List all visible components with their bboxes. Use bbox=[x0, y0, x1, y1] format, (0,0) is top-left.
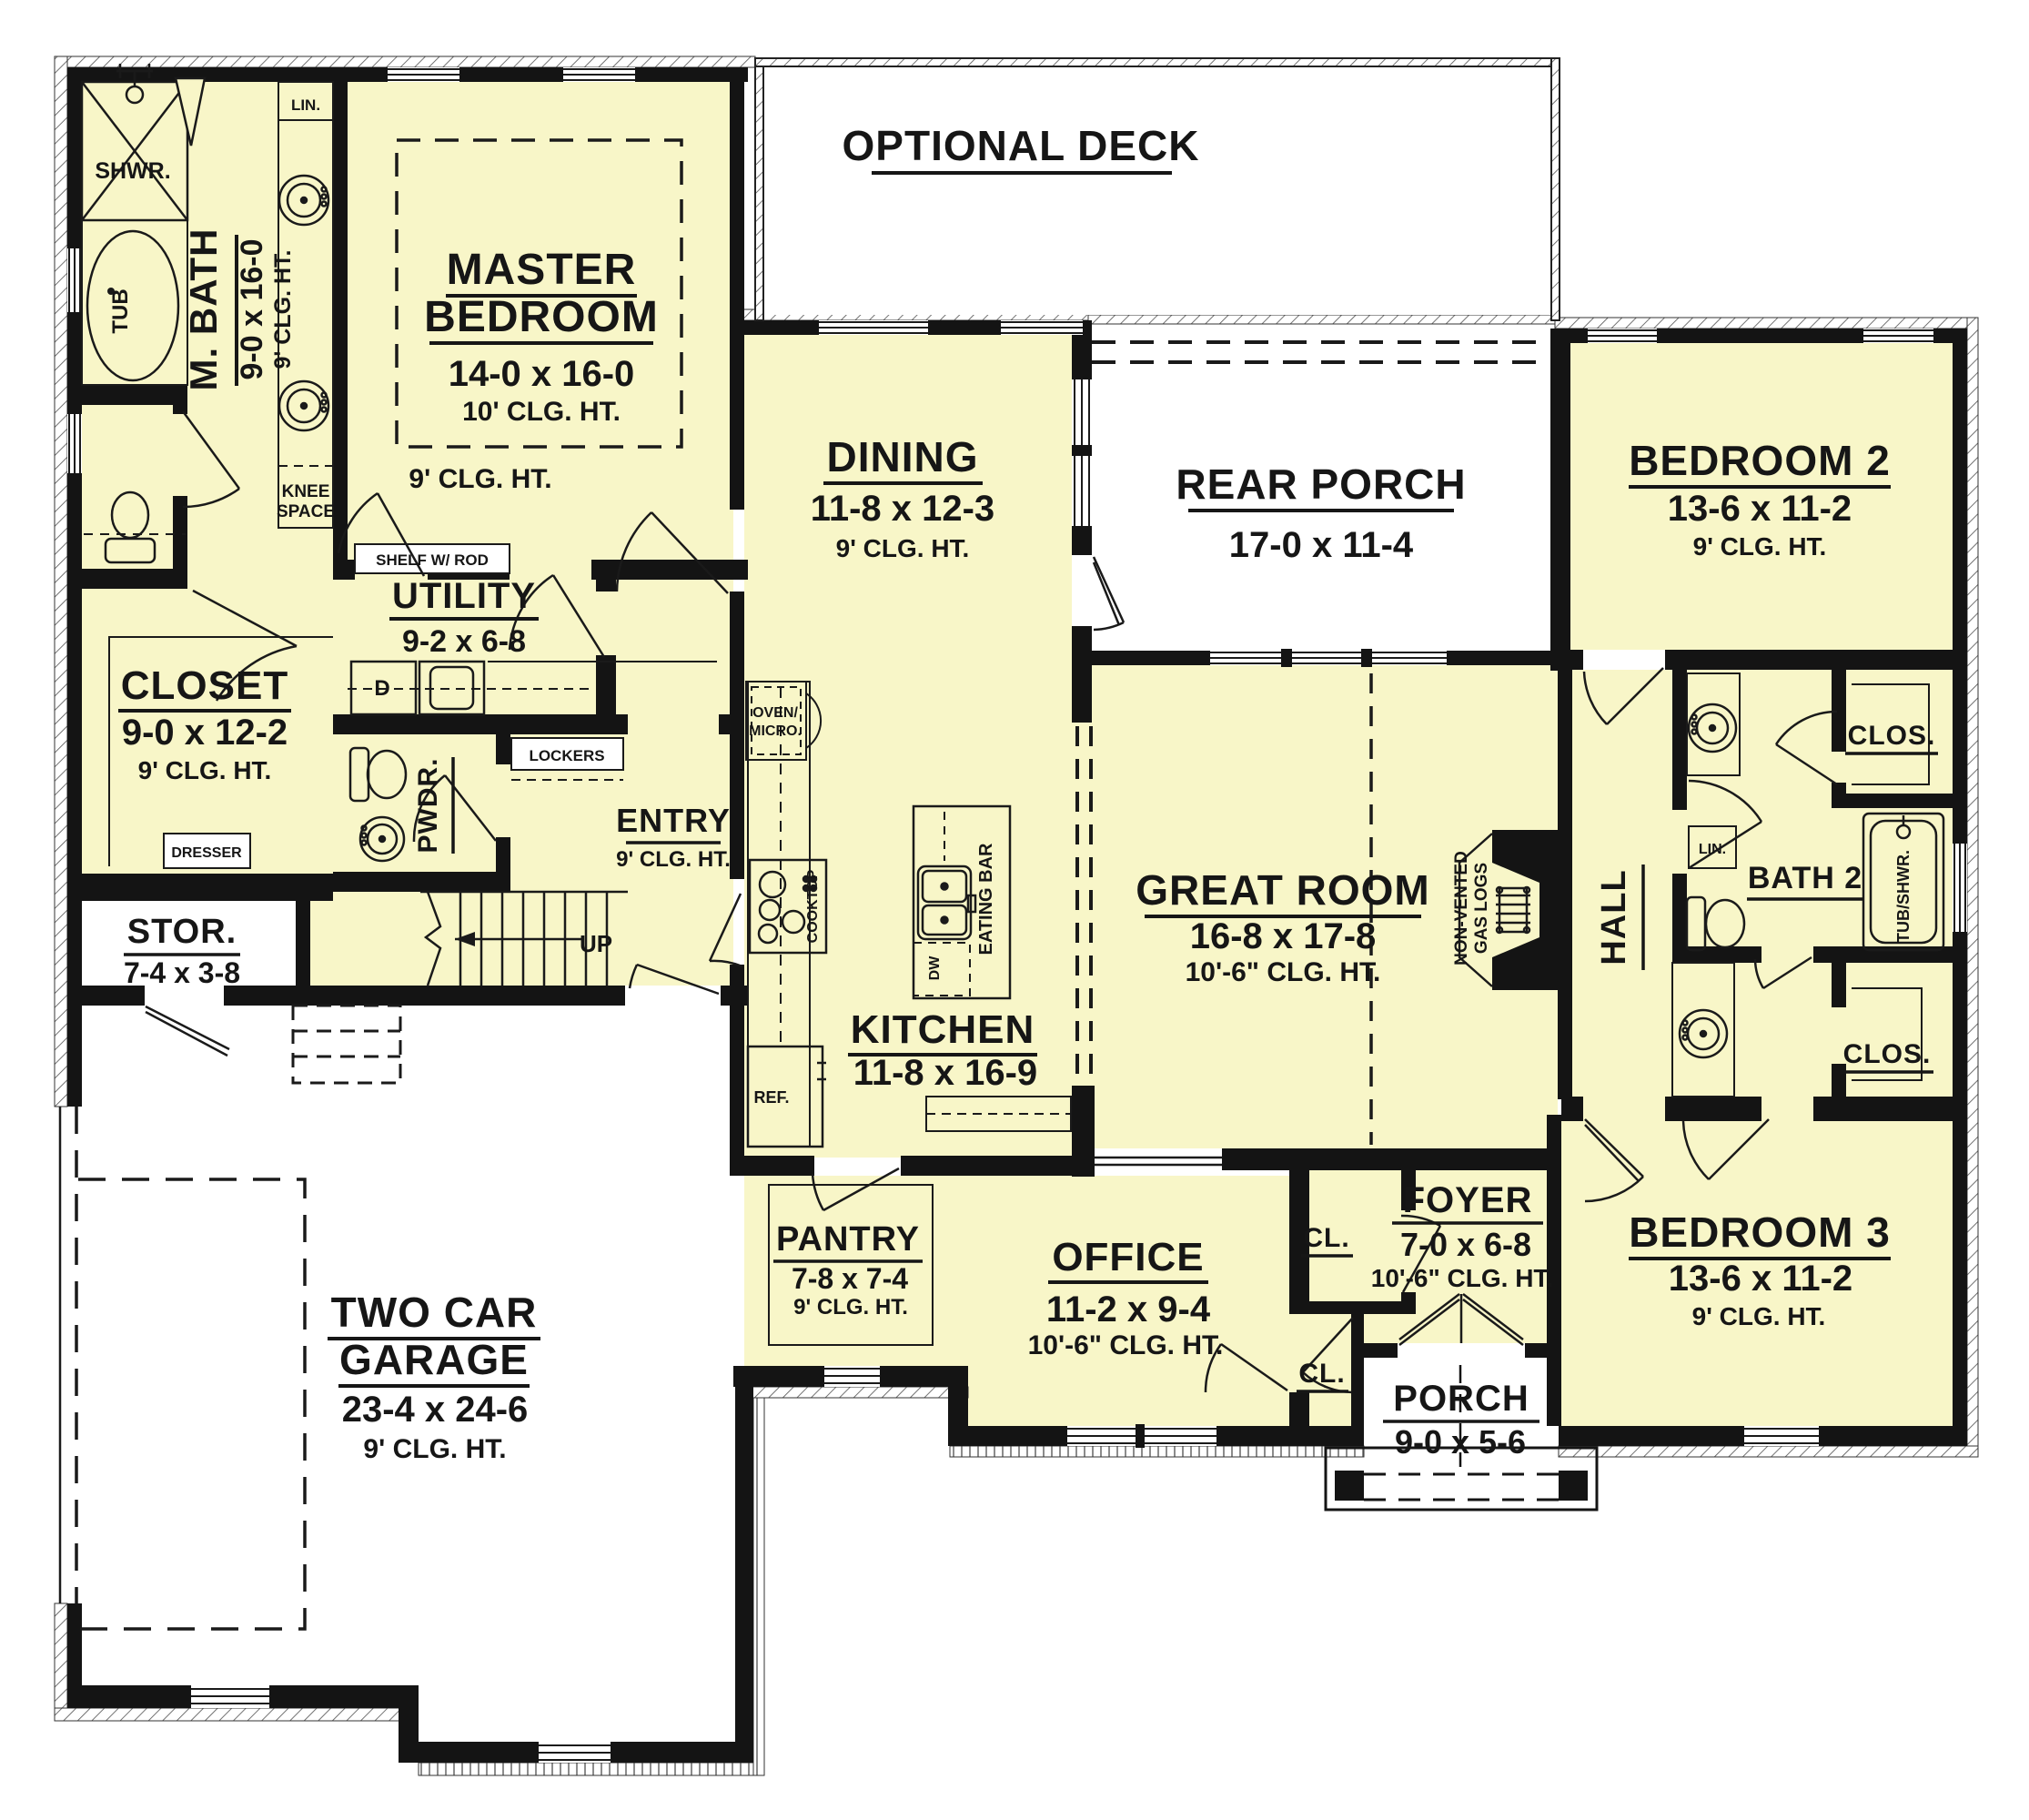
svg-text:9' CLG. HT.: 9' CLG. HT. bbox=[616, 847, 731, 872]
svg-text:11-8 x 12-3: 11-8 x 12-3 bbox=[811, 489, 994, 529]
svg-text:CLOS.: CLOS. bbox=[1843, 1039, 1932, 1069]
svg-text:CLOSET: CLOSET bbox=[121, 663, 288, 708]
svg-text:OVEN/: OVEN/ bbox=[752, 705, 798, 721]
svg-text:TUB/SHWR.: TUB/SHWR. bbox=[1894, 850, 1913, 943]
svg-text:D: D bbox=[374, 676, 389, 701]
svg-text:NON-VENTED: NON-VENTED bbox=[1452, 851, 1471, 966]
svg-text:11-2 x 9-4: 11-2 x 9-4 bbox=[1046, 1289, 1211, 1330]
svg-text:9-0 x 5-6: 9-0 x 5-6 bbox=[1395, 1423, 1526, 1461]
svg-text:9' CLG. HT.: 9' CLG. HT. bbox=[793, 1295, 908, 1319]
svg-text:DRESSER: DRESSER bbox=[171, 845, 242, 861]
svg-text:KITCHEN: KITCHEN bbox=[851, 1007, 1035, 1052]
svg-text:16-8 x 17-8: 16-8 x 17-8 bbox=[1190, 916, 1377, 956]
svg-text:10'-6" CLG. HT.: 10'-6" CLG. HT. bbox=[1028, 1330, 1224, 1360]
svg-text:OPTIONAL DECK: OPTIONAL DECK bbox=[843, 122, 1200, 169]
svg-text:SHELF W/ ROD: SHELF W/ ROD bbox=[376, 551, 489, 569]
svg-text:M. BATH: M. BATH bbox=[182, 228, 225, 391]
svg-text:9' CLG. HT.: 9' CLG. HT. bbox=[270, 250, 296, 369]
svg-text:BEDROOM 3: BEDROOM 3 bbox=[1629, 1208, 1891, 1256]
svg-text:EATING BAR: EATING BAR bbox=[976, 843, 996, 955]
svg-text:10'-6" CLG. HT.: 10'-6" CLG. HT. bbox=[1186, 957, 1381, 987]
svg-text:7-8 x 7-4: 7-8 x 7-4 bbox=[792, 1262, 908, 1295]
svg-text:DINING: DINING bbox=[827, 433, 979, 480]
svg-text:LIN.: LIN. bbox=[291, 96, 320, 114]
svg-text:23-4 x 24-6: 23-4 x 24-6 bbox=[342, 1390, 529, 1430]
svg-text:COOKTOP: COOKTOP bbox=[805, 869, 821, 943]
svg-text:STOR.: STOR. bbox=[127, 913, 237, 951]
svg-text:9-0 x 16-0: 9-0 x 16-0 bbox=[235, 239, 269, 380]
svg-text:9-2 x 6-8: 9-2 x 6-8 bbox=[402, 624, 526, 659]
svg-text:BEDROOM: BEDROOM bbox=[424, 293, 659, 341]
svg-text:KNEE: KNEE bbox=[282, 482, 330, 501]
svg-text:9' CLG. HT.: 9' CLG. HT. bbox=[363, 1434, 506, 1464]
svg-text:9' CLG. HT.: 9' CLG. HT. bbox=[138, 756, 272, 784]
svg-text:TUB: TUB bbox=[108, 288, 133, 333]
svg-text:CL.: CL. bbox=[1303, 1223, 1349, 1253]
svg-text:9' CLG. HT.: 9' CLG. HT. bbox=[409, 464, 551, 494]
svg-text:10' CLG. HT.: 10' CLG. HT. bbox=[462, 397, 621, 427]
svg-text:10'-6" CLG. HT.: 10'-6" CLG. HT. bbox=[1371, 1264, 1553, 1292]
svg-text:CLOS.: CLOS. bbox=[1848, 721, 1936, 751]
svg-text:CL.: CL. bbox=[1298, 1359, 1345, 1389]
svg-text:GREAT ROOM: GREAT ROOM bbox=[1136, 866, 1429, 914]
svg-text:BEDROOM 2: BEDROOM 2 bbox=[1629, 437, 1891, 484]
svg-text:MASTER: MASTER bbox=[447, 246, 637, 294]
svg-text:9' CLG. HT.: 9' CLG. HT. bbox=[1692, 1302, 1826, 1330]
svg-text:9' CLG. HT.: 9' CLG. HT. bbox=[836, 534, 970, 562]
svg-text:ENTRY: ENTRY bbox=[616, 802, 731, 839]
svg-text:17-0 x 11-4: 17-0 x 11-4 bbox=[1229, 525, 1414, 565]
svg-text:UTILITY: UTILITY bbox=[392, 576, 536, 616]
svg-text:OFFICE: OFFICE bbox=[1052, 1235, 1204, 1279]
svg-text:GAS LOGS: GAS LOGS bbox=[1472, 863, 1491, 954]
svg-text:9' CLG. HT.: 9' CLG. HT. bbox=[1693, 532, 1827, 561]
svg-text:BATH 2: BATH 2 bbox=[1748, 861, 1862, 895]
svg-text:MICRO.: MICRO. bbox=[749, 723, 802, 739]
svg-text:FOYER: FOYER bbox=[1403, 1180, 1533, 1220]
svg-text:13-6 x 11-2: 13-6 x 11-2 bbox=[1669, 1259, 1852, 1299]
svg-text:REF.: REF. bbox=[753, 1088, 789, 1107]
svg-text:PORCH: PORCH bbox=[1393, 1379, 1529, 1419]
svg-text:9-0 x 12-2: 9-0 x 12-2 bbox=[122, 713, 288, 753]
svg-text:14-0 x 16-0: 14-0 x 16-0 bbox=[449, 354, 635, 394]
svg-text:13-6 x 11-2: 13-6 x 11-2 bbox=[1668, 489, 1852, 529]
svg-text:SPACE: SPACE bbox=[277, 502, 335, 521]
svg-text:7-0 x 6-8: 7-0 x 6-8 bbox=[1400, 1226, 1531, 1263]
svg-text:GARAGE: GARAGE bbox=[339, 1336, 529, 1383]
svg-text:PANTRY: PANTRY bbox=[776, 1220, 920, 1259]
svg-text:UP: UP bbox=[580, 930, 612, 957]
svg-text:LOCKERS: LOCKERS bbox=[529, 747, 604, 764]
svg-text:11-8 x 16-9: 11-8 x 16-9 bbox=[853, 1053, 1037, 1093]
svg-text:SHWR.: SHWR. bbox=[95, 158, 170, 184]
svg-text:LIN.: LIN. bbox=[1699, 842, 1726, 857]
svg-text:7-4 x 3-8: 7-4 x 3-8 bbox=[124, 956, 240, 989]
svg-text:DW: DW bbox=[927, 955, 943, 981]
svg-text:TWO CAR: TWO CAR bbox=[331, 1289, 538, 1336]
svg-text:PWDR.: PWDR. bbox=[413, 758, 443, 854]
svg-text:REAR PORCH: REAR PORCH bbox=[1176, 460, 1466, 508]
svg-text:HALL: HALL bbox=[1595, 869, 1633, 965]
